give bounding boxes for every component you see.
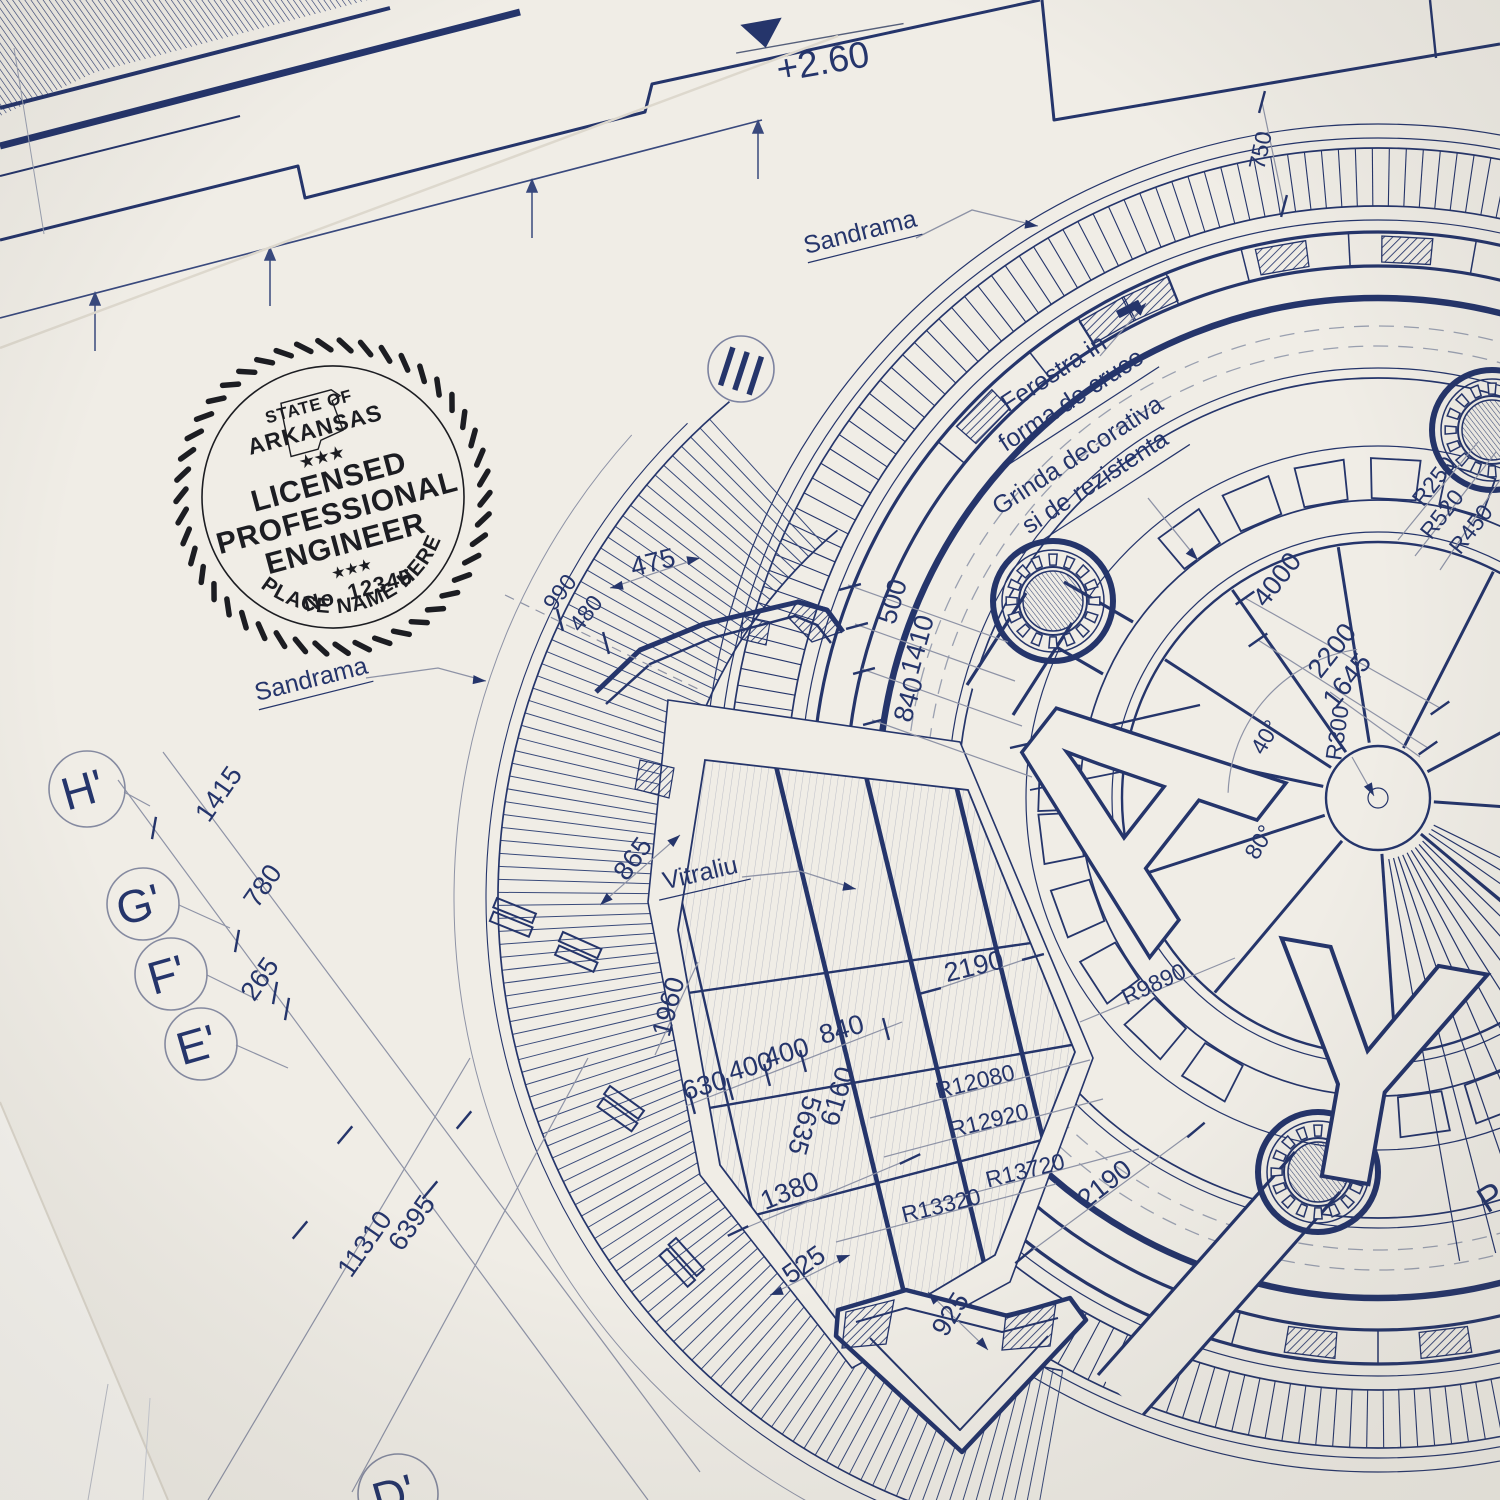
blueprint-canvas: A Y 475 990 480 500 1410 840 865 1960 63… (0, 0, 1500, 1500)
blueprint-photo: A Y 475 990 480 500 1410 840 865 1960 63… (0, 0, 1500, 1500)
photo-vignette (0, 0, 1500, 1500)
